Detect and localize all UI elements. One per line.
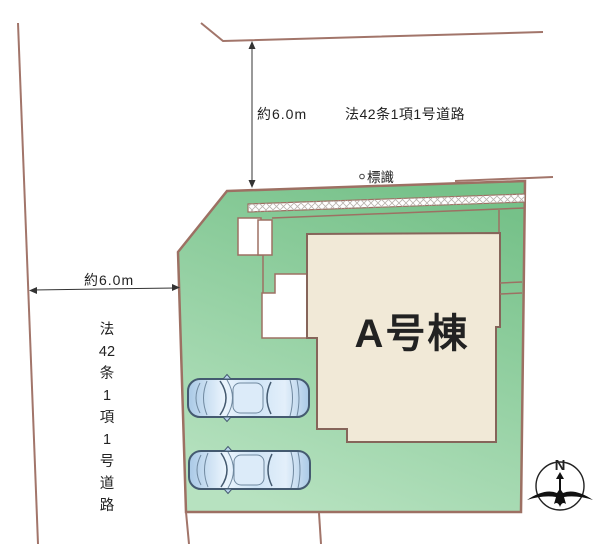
- sign-dot-icon: [360, 174, 365, 179]
- east-step-line: [500, 282, 522, 283]
- boundary-extension-left: [186, 512, 189, 544]
- arrow-left-icon: [29, 287, 37, 294]
- road-name-left: 法 42 条 1 項 1 号 道 路: [99, 321, 115, 514]
- svg-text:項: 項: [100, 410, 115, 426]
- boundary-extension-mid: [319, 513, 321, 544]
- car-1: [188, 375, 309, 422]
- utility-box: [258, 220, 272, 255]
- svg-text:1: 1: [103, 388, 111, 404]
- site-plan-drawing: A号棟 約6.0m 約6.0m 法42条1項1号道路 標識 法 42 条 1 項…: [0, 0, 600, 544]
- dimension-top-label: 約6.0m: [257, 106, 307, 122]
- sign-label: 標識: [367, 170, 394, 185]
- svg-text:道: 道: [100, 475, 115, 492]
- road-line-top-right-stub: [455, 177, 553, 181]
- svg-text:条: 条: [100, 365, 115, 382]
- svg-text:法: 法: [100, 321, 115, 338]
- road-line-top: [201, 23, 543, 41]
- svg-text:1: 1: [103, 432, 111, 448]
- compass: N: [527, 457, 593, 510]
- building-a-label: A号棟: [355, 312, 470, 356]
- svg-text:路: 路: [100, 497, 115, 514]
- compass-north-label: N: [555, 457, 566, 474]
- site-plan-page: A号棟 約6.0m 約6.0m 法42条1項1号道路 標識 法 42 条 1 項…: [0, 0, 600, 544]
- svg-text:号: 号: [100, 454, 115, 470]
- arrow-up-icon: [249, 41, 256, 49]
- svg-text:42: 42: [99, 344, 115, 360]
- dimension-left: 約6.0m: [29, 272, 180, 294]
- dimension-left-label: 約6.0m: [84, 272, 134, 288]
- sign-marker: 標識: [360, 170, 394, 185]
- road-line-left: [18, 23, 38, 544]
- east-step-line: [500, 293, 522, 294]
- dimension-top: 約6.0m: [249, 41, 308, 188]
- road-name-top: 法42条1項1号道路: [345, 106, 465, 122]
- arrow-down-icon: [249, 180, 256, 188]
- car-2: [189, 447, 310, 494]
